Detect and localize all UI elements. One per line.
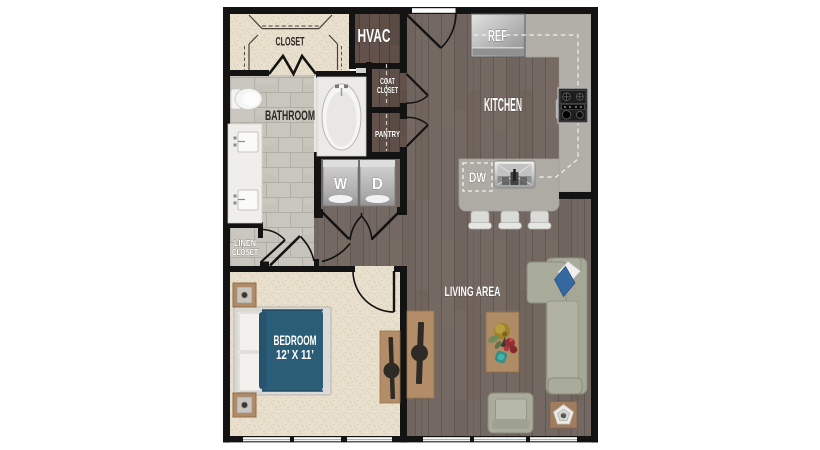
svg-text:D: D [372,176,383,193]
svg-text:DW: DW [469,169,487,185]
svg-text:REF: REF [488,28,507,45]
svg-text:LIVING AREA: LIVING AREA [445,283,501,299]
svg-text:BATHROOM: BATHROOM [265,107,315,123]
svg-text:CLOSET: CLOSET [232,248,258,257]
svg-text:BEDROOM: BEDROOM [274,332,317,348]
svg-text:PANTRY: PANTRY [375,129,400,139]
svg-text:HVAC: HVAC [358,26,391,46]
svg-text:KITCHEN: KITCHEN [484,95,522,115]
svg-text:LINEN: LINEN [234,239,256,248]
svg-text:W: W [334,176,348,193]
svg-text:CLOSET: CLOSET [276,35,305,49]
svg-text:12’ X 11’: 12’ X 11’ [276,347,314,362]
svg-text:CLOSET: CLOSET [377,85,398,95]
